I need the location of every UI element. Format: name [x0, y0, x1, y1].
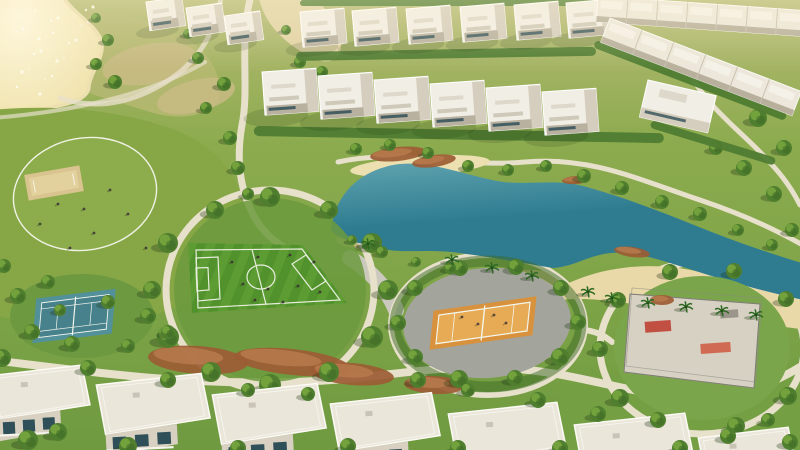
aerial-scene [0, 0, 800, 450]
atmospheric-haze [0, 0, 800, 180]
aerial-render [0, 0, 800, 450]
